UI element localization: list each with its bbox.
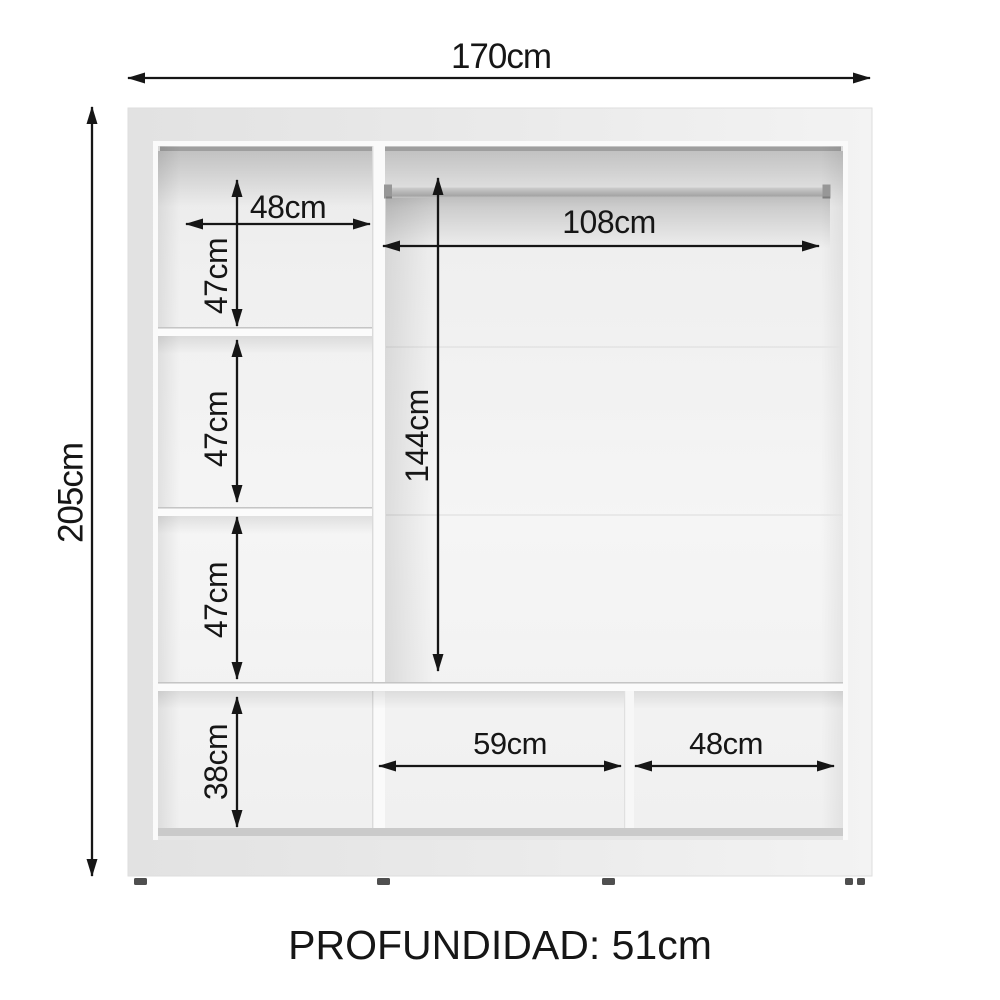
vertical-divider-left-column bbox=[372, 146, 385, 835]
hanging-rod bbox=[386, 188, 830, 197]
dim-label-left-bottom-cell-height: 38cm bbox=[198, 724, 234, 800]
dim-label-top-left-shelf-width: 48cm bbox=[250, 189, 326, 225]
dim-label-left-cell-1-height: 47cm bbox=[198, 238, 234, 314]
hanging-rod-left-cap bbox=[384, 185, 392, 199]
wardrobe-foot bbox=[134, 878, 147, 885]
interior-right-wall-shade bbox=[821, 146, 843, 835]
shelf-1-shadow bbox=[158, 336, 372, 354]
dim-label-left-cell-3-height: 47cm bbox=[198, 562, 234, 638]
interior-ceiling-edge bbox=[160, 147, 841, 152]
interior-left-wall-shade bbox=[158, 146, 180, 835]
shelf-1-edge bbox=[158, 327, 372, 329]
vertical-divider-edge bbox=[372, 146, 373, 835]
bottom-shelf bbox=[158, 684, 843, 691]
wardrobe-foot bbox=[857, 878, 865, 885]
dim-label-bottom-center-width: 59cm bbox=[473, 726, 547, 761]
dim-label-overall-height: 205cm bbox=[51, 443, 90, 543]
dim-label-hanging-width: 108cm bbox=[562, 204, 656, 240]
shelf-2-shadow bbox=[158, 516, 372, 534]
interior-floor-edge bbox=[158, 828, 843, 836]
bottom-shelf-edge bbox=[158, 682, 843, 684]
dim-label-left-cell-2-height: 47cm bbox=[198, 391, 234, 467]
hanging-rod-right-cap bbox=[823, 185, 831, 199]
bottom-shelf-shadow bbox=[158, 691, 843, 709]
wardrobe-foot bbox=[602, 878, 615, 885]
dim-label-hanging-height: 144cm bbox=[399, 389, 435, 483]
wardrobe-foot bbox=[845, 878, 853, 885]
interior-floor-highlight bbox=[158, 836, 843, 840]
diagram-canvas: 170cm 205cm 48cm 47cm 47cm 47cm 38cm 108… bbox=[0, 0, 1000, 1000]
shelf-1 bbox=[158, 329, 372, 336]
shelf-2 bbox=[158, 509, 372, 516]
depth-label: PROFUNDIDAD: 51cm bbox=[288, 922, 712, 968]
wardrobe-foot bbox=[377, 878, 390, 885]
dim-label-bottom-right-width: 48cm bbox=[689, 726, 763, 761]
shelf-2-edge bbox=[158, 507, 372, 509]
bottom-divider bbox=[624, 691, 634, 835]
wardrobe-dimension-diagram: 170cm 205cm 48cm 47cm 47cm 47cm 38cm 108… bbox=[0, 0, 1000, 1000]
dim-label-overall-width: 170cm bbox=[451, 37, 551, 76]
bottom-divider-edge bbox=[624, 691, 625, 835]
